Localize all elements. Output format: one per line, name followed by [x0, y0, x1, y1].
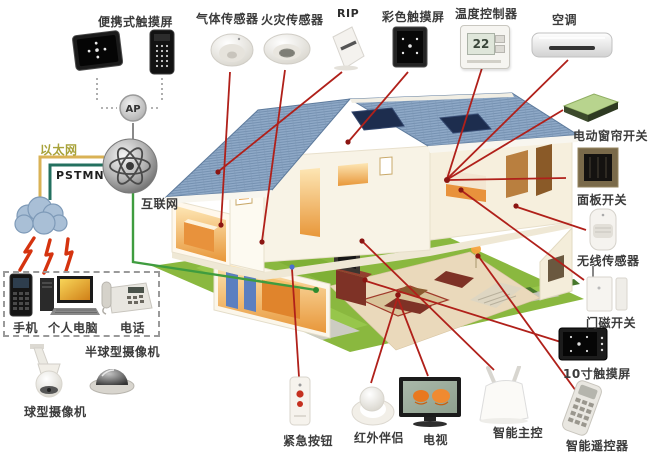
ir-companion-icon [348, 380, 398, 427]
label-curtain-switch: 电动窗帘开关 [573, 127, 648, 144]
label-dome-camera: 半球型摄像机 [85, 343, 160, 360]
mobile-phone-icon [7, 272, 35, 318]
label-tv: 电视 [423, 431, 448, 448]
door-magnet-icon [582, 264, 630, 313]
tv-icon [397, 375, 465, 428]
ptz-camera-icon [26, 344, 74, 400]
wireless-sensor-icon [586, 206, 620, 253]
smart-remote-icon [558, 380, 606, 437]
ap-label: AP [125, 104, 140, 115]
label-telephone: 电话 [120, 319, 145, 336]
pc-icon [38, 274, 100, 318]
cloud-icon [15, 197, 67, 234]
label-panel-switch: 面板开关 [577, 191, 627, 208]
lightning-icons [20, 238, 72, 273]
label-door-magnet-switch: 门磁开关 [586, 314, 636, 331]
label-personal-computer: 个人电脑 [48, 319, 98, 336]
thermostat-button-down [495, 45, 505, 53]
fire-sensor-icon [262, 29, 312, 69]
label-smart-remote: 智能遥控器 [566, 437, 629, 454]
master-control-icon [474, 366, 534, 424]
label-pstn: PSTMN [56, 169, 105, 182]
label-ethernet: 以太网 [40, 141, 78, 158]
curtain-switch-icon [560, 90, 622, 125]
emergency-button-icon [284, 374, 316, 430]
air-conditioner-icon [531, 32, 613, 59]
telephone-icon [100, 274, 154, 316]
label-touchscreen-10inch: 10寸触摸屏 [563, 365, 631, 382]
label-mobile-phone: 手机 [13, 319, 38, 336]
label-color-touchscreen: 彩色触摸屏 [382, 8, 445, 25]
label-air-conditioner: 空调 [552, 11, 577, 28]
dome-camera-icon [88, 356, 136, 396]
internet-sphere-icon [103, 139, 157, 193]
label-temperature-controller: 温度控制器 [455, 5, 518, 22]
label-ir-companion: 红外伴侣 [354, 429, 404, 446]
thermostat-button-up [495, 35, 505, 43]
label-emergency-button: 紧急按钮 [283, 432, 333, 449]
portable-tablet-icon [70, 26, 126, 74]
label-rip: RIP [337, 7, 359, 20]
label-fire-sensor: 火灾传感器 [261, 11, 324, 28]
label-gas-sensor: 气体传感器 [196, 10, 259, 27]
portable-remote-icon [147, 29, 177, 75]
label-internet: 互联网 [141, 195, 179, 212]
panel-switch-icon [577, 147, 619, 188]
color-touchscreen-icon [390, 26, 430, 70]
gas-sensor-icon [209, 27, 255, 71]
label-portable-touchscreen: 便携式触摸屏 [98, 13, 173, 30]
label-ptz-camera: 球型摄像机 [24, 403, 87, 420]
smart-home-diagram: AP [0, 0, 648, 460]
thermostat-slot [467, 60, 501, 63]
thermostat-reading: 22 [467, 33, 495, 55]
rip-sensor-icon [326, 23, 366, 71]
label-wireless-sensor: 无线传感器 [577, 252, 640, 269]
label-smart-master-control: 智能主控 [493, 424, 543, 441]
thermostat-icon: 22 [460, 25, 510, 69]
